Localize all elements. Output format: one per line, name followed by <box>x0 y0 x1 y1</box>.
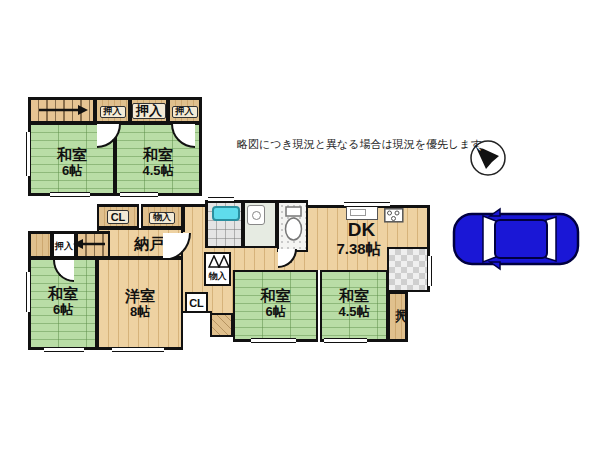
entrance-door-marker <box>427 256 432 286</box>
closet-2f-center: 押入 <box>130 97 168 123</box>
bifold-door-icon <box>208 255 230 268</box>
bathroom <box>205 200 243 248</box>
closet-label: CL <box>107 210 130 224</box>
closet-cl-mid: CL <box>185 292 208 313</box>
closet-cl-top: CL <box>97 204 139 228</box>
kitchen-sink-icon <box>346 206 378 220</box>
closet-label: 押入 <box>172 106 198 118</box>
washing-machine-icon <box>247 205 265 225</box>
room-name-label: 和室 <box>117 147 199 164</box>
genkan-tile <box>387 247 430 292</box>
closet-label: 押入 <box>100 106 126 118</box>
room-name-label: 洋室 <box>99 288 181 305</box>
room-size-label: 4.5帖 <box>117 164 199 178</box>
closet-monoire-mid: 物入 <box>204 252 231 286</box>
wall <box>183 204 207 207</box>
room-1f-washitsu-6-center: 和室 6帖 <box>233 270 318 342</box>
room-name-label: 和室 <box>322 288 386 305</box>
room-name-label: 和室 <box>31 286 95 303</box>
stair-arrow-icon <box>36 104 90 116</box>
closet-label: 押入 <box>393 300 408 304</box>
washroom <box>243 200 277 248</box>
room-name-label: 和室 <box>235 288 316 305</box>
corridor-step <box>210 313 233 337</box>
bathtub-icon <box>212 206 240 221</box>
room-size-label: 6帖 <box>31 164 113 178</box>
window-marker <box>112 347 164 352</box>
room-size-label: 8帖 <box>99 305 181 319</box>
window-marker <box>344 202 390 207</box>
closet-label: CL <box>187 297 206 309</box>
closet-2f-left: 押入 <box>95 97 130 123</box>
room-size-label: 4.5帖 <box>322 305 386 319</box>
window-marker <box>324 338 367 343</box>
window-marker <box>251 338 296 343</box>
room-size-label: 6帖 <box>31 303 95 317</box>
window-marker <box>208 197 234 202</box>
car-icon <box>450 206 582 272</box>
window-marker <box>44 347 84 352</box>
stove-icon <box>384 208 404 223</box>
closet-label: 物入 <box>206 272 229 282</box>
closet-left-shelf <box>28 231 52 258</box>
stair-arrow-icon <box>72 238 108 250</box>
north-arrow-icon: N <box>468 138 508 178</box>
room-name-label: 和室 <box>31 147 113 164</box>
room-yoshitsu-8: 洋室 8帖 <box>97 258 183 350</box>
room-size-label: 6帖 <box>235 305 316 319</box>
window-marker <box>26 132 31 176</box>
window-marker <box>26 272 31 312</box>
room-1f-washitsu-45: 和室 4.5帖 <box>320 270 388 342</box>
disclaimer-text: 略図につき現況と異なる場合は現況を優先します <box>237 137 482 152</box>
wall <box>183 204 185 232</box>
toilet-icon <box>284 206 304 244</box>
closet-monoire-top: 物入 <box>141 204 183 228</box>
toilet-room <box>277 200 308 252</box>
window-marker <box>120 192 158 197</box>
closet-oshiire-right: 押入 <box>388 292 408 342</box>
room-name-label: DK <box>296 220 427 241</box>
floor-plan-canvas: 略図につき現況と異なる場合は現況を優先します 押入 押入 押入 和室 6帖 和室… <box>0 0 600 450</box>
closet-2f-right: 押入 <box>168 97 202 123</box>
closet-label: 押入 <box>132 103 166 119</box>
closet-label: 押入 <box>54 242 74 252</box>
closet-label: 物入 <box>149 212 175 224</box>
window-marker <box>50 192 90 197</box>
